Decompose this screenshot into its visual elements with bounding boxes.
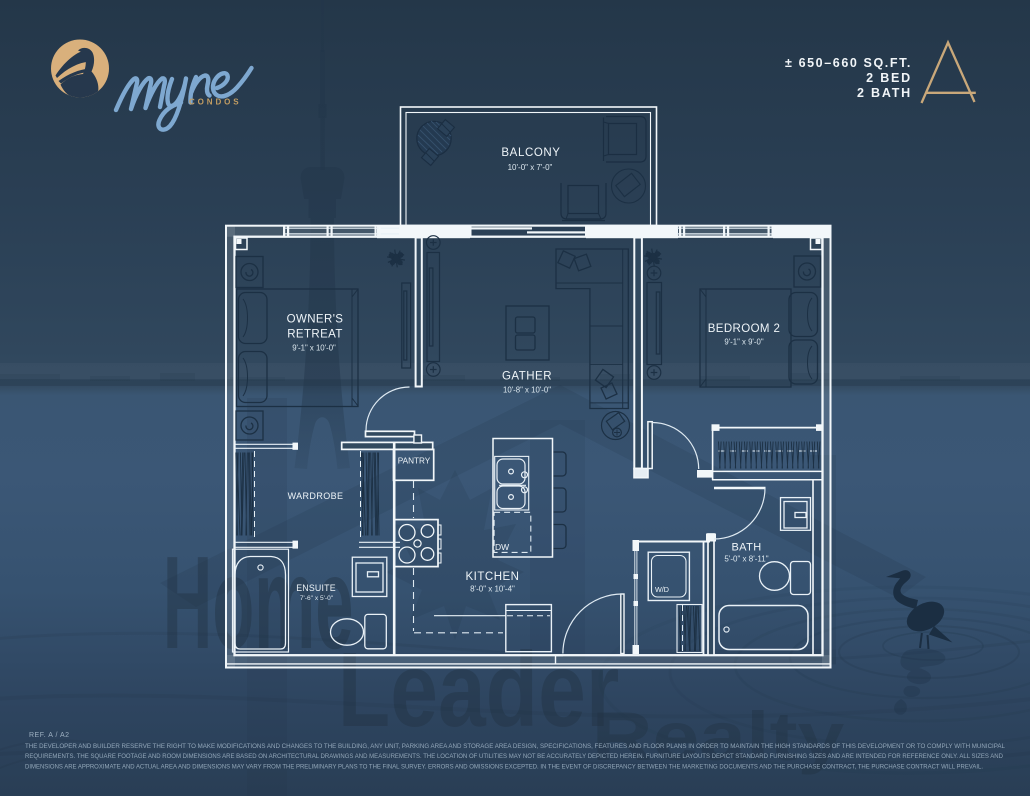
svg-text:OWNER'S: OWNER'S [287,314,344,326]
svg-text:9'-1" x 10'-0": 9'-1" x 10'-0" [292,344,336,353]
svg-text:10'-0" x 7'-0": 10'-0" x 7'-0" [508,163,553,172]
svg-text:2 BED: 2 BED [866,71,912,85]
svg-text:KITCHEN: KITCHEN [466,571,520,583]
svg-text:10'-8" x 10'-0": 10'-8" x 10'-0" [503,386,551,395]
svg-text:CONDOS: CONDOS [189,98,242,107]
svg-text:REQUIREMENTS. THE SQUARE FOOTA: REQUIREMENTS. THE SQUARE FOOTAGE AND ROO… [25,753,1003,760]
svg-text:RETREAT: RETREAT [287,329,343,341]
svg-text:5'-0" x 8'-11": 5'-0" x 8'-11" [724,555,768,564]
svg-text:GATHER: GATHER [502,371,552,383]
svg-text:9'-1" x 9'-0": 9'-1" x 9'-0" [724,338,764,347]
svg-text:THE DEVELOPER AND BUILDER RESE: THE DEVELOPER AND BUILDER RESERVE THE RI… [25,743,1005,750]
svg-text:W/D: W/D [655,585,669,594]
svg-text:WARDROBE: WARDROBE [288,491,344,501]
svg-text:DIMENSIONS ARE APPROXIMATE AND: DIMENSIONS ARE APPROXIMATE AND ACTUAL AR… [25,763,983,770]
svg-text:± 650–660 SQ.FT.: ± 650–660 SQ.FT. [785,56,912,70]
svg-text:BEDROOM 2: BEDROOM 2 [708,323,781,335]
svg-text:ENSUITE: ENSUITE [296,583,336,593]
svg-text:7'-6" x 5'-0": 7'-6" x 5'-0" [300,595,334,602]
svg-text:2 BATH: 2 BATH [857,86,912,100]
svg-text:8'-0" x 10'-4": 8'-0" x 10'-4" [470,585,515,594]
svg-text:BATH: BATH [731,542,761,554]
svg-text:PANTRY: PANTRY [398,457,431,466]
svg-text:BALCONY: BALCONY [501,147,560,159]
svg-text:DW: DW [495,542,509,552]
svg-text:REF. A / A2: REF. A / A2 [29,732,70,739]
